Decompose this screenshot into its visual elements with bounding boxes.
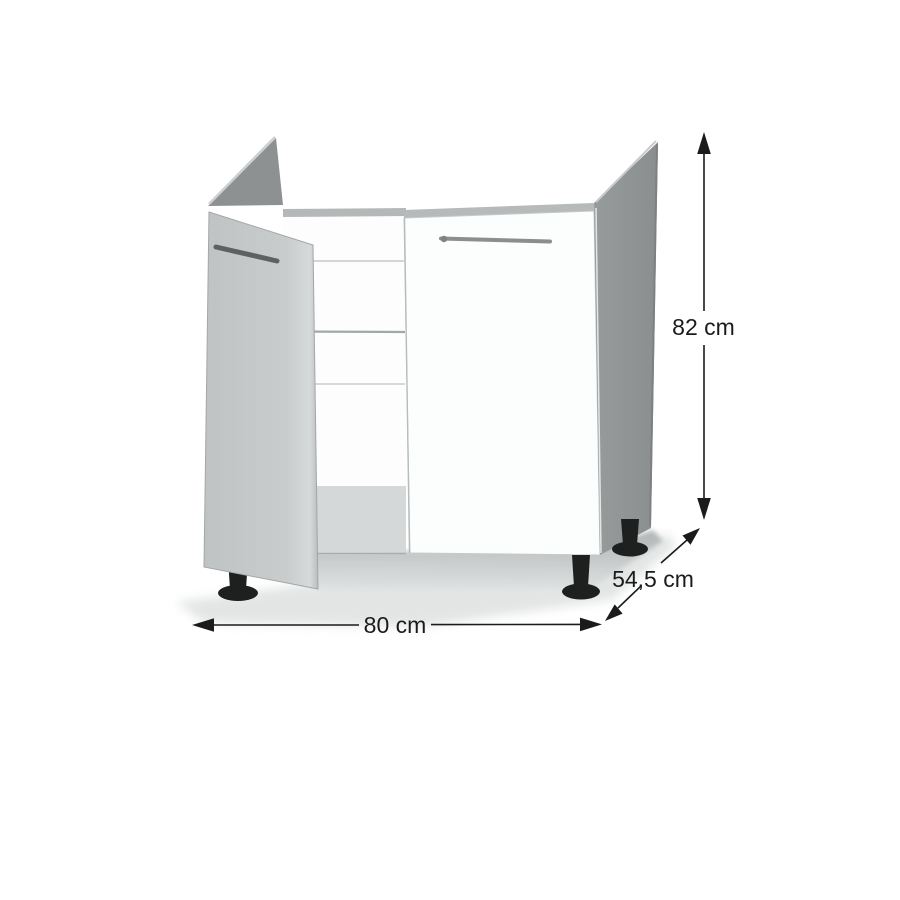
front-right-leg-foot [562, 584, 600, 600]
height-dimension-label: 82 cm [672, 314, 735, 340]
height-dimension: 82 cm [672, 132, 735, 520]
right-side-panel-face [594, 142, 658, 555]
right-side-panel [594, 141, 658, 555]
left-side-panel-face [208, 138, 283, 206]
front-right-leg-stem [572, 555, 590, 587]
left-side-panel [208, 137, 283, 206]
right-door [404, 203, 600, 555]
cabinet-dimension-diagram: 82 cm 54,5 cm 80 cm [0, 0, 900, 900]
left-door-face [204, 212, 318, 589]
rear-right-leg-foot [612, 542, 648, 557]
width-arrowhead-right-icon [580, 618, 602, 632]
rear-right-leg-stem [621, 519, 639, 545]
height-arrowhead-down-icon [697, 498, 711, 520]
carcass-top-rail [283, 208, 406, 217]
diagram-canvas: 82 cm 54,5 cm 80 cm [0, 0, 900, 900]
front-left-leg-foot [218, 585, 258, 601]
left-door-open [204, 212, 318, 589]
right-door-handle-mount [441, 236, 447, 242]
right-door-face [404, 211, 600, 555]
width-dimension-label: 80 cm [364, 612, 427, 638]
height-arrowhead-up-icon [697, 132, 711, 154]
depth-dimension-label: 54,5 cm [612, 566, 694, 592]
